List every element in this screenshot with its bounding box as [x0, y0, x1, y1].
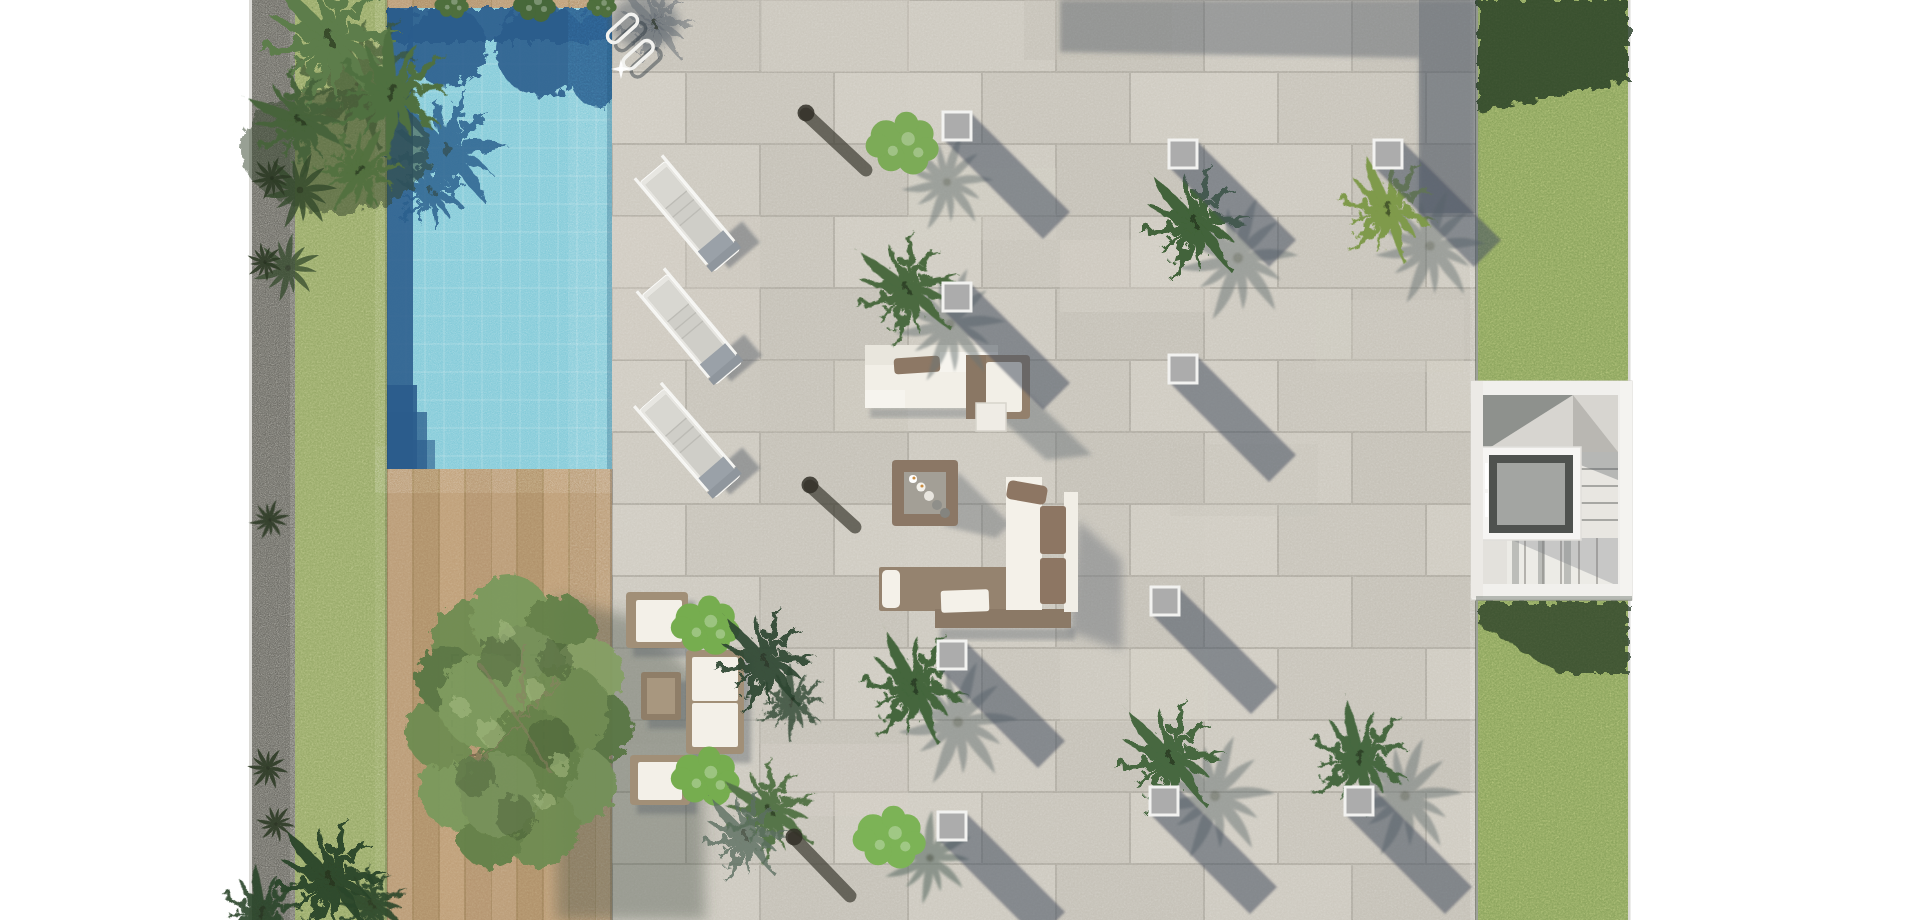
stair-landing	[1483, 395, 1618, 452]
planter-square	[1151, 587, 1179, 615]
side-table	[976, 403, 1006, 431]
elevator	[1481, 447, 1581, 540]
planter-square	[1345, 787, 1373, 815]
planter-square	[1150, 787, 1178, 815]
stair-flight-bottom	[1507, 538, 1618, 586]
planter-square	[943, 283, 971, 311]
site-plan-canvas	[0, 0, 1920, 920]
planter-square	[938, 812, 966, 840]
planter-square	[943, 112, 971, 140]
planter-square	[1374, 140, 1402, 168]
plan-stage	[0, 0, 1920, 920]
planter-square	[1169, 355, 1197, 383]
planter-square	[1169, 140, 1197, 168]
stair-core	[1471, 381, 1632, 601]
planter-square	[938, 641, 966, 669]
